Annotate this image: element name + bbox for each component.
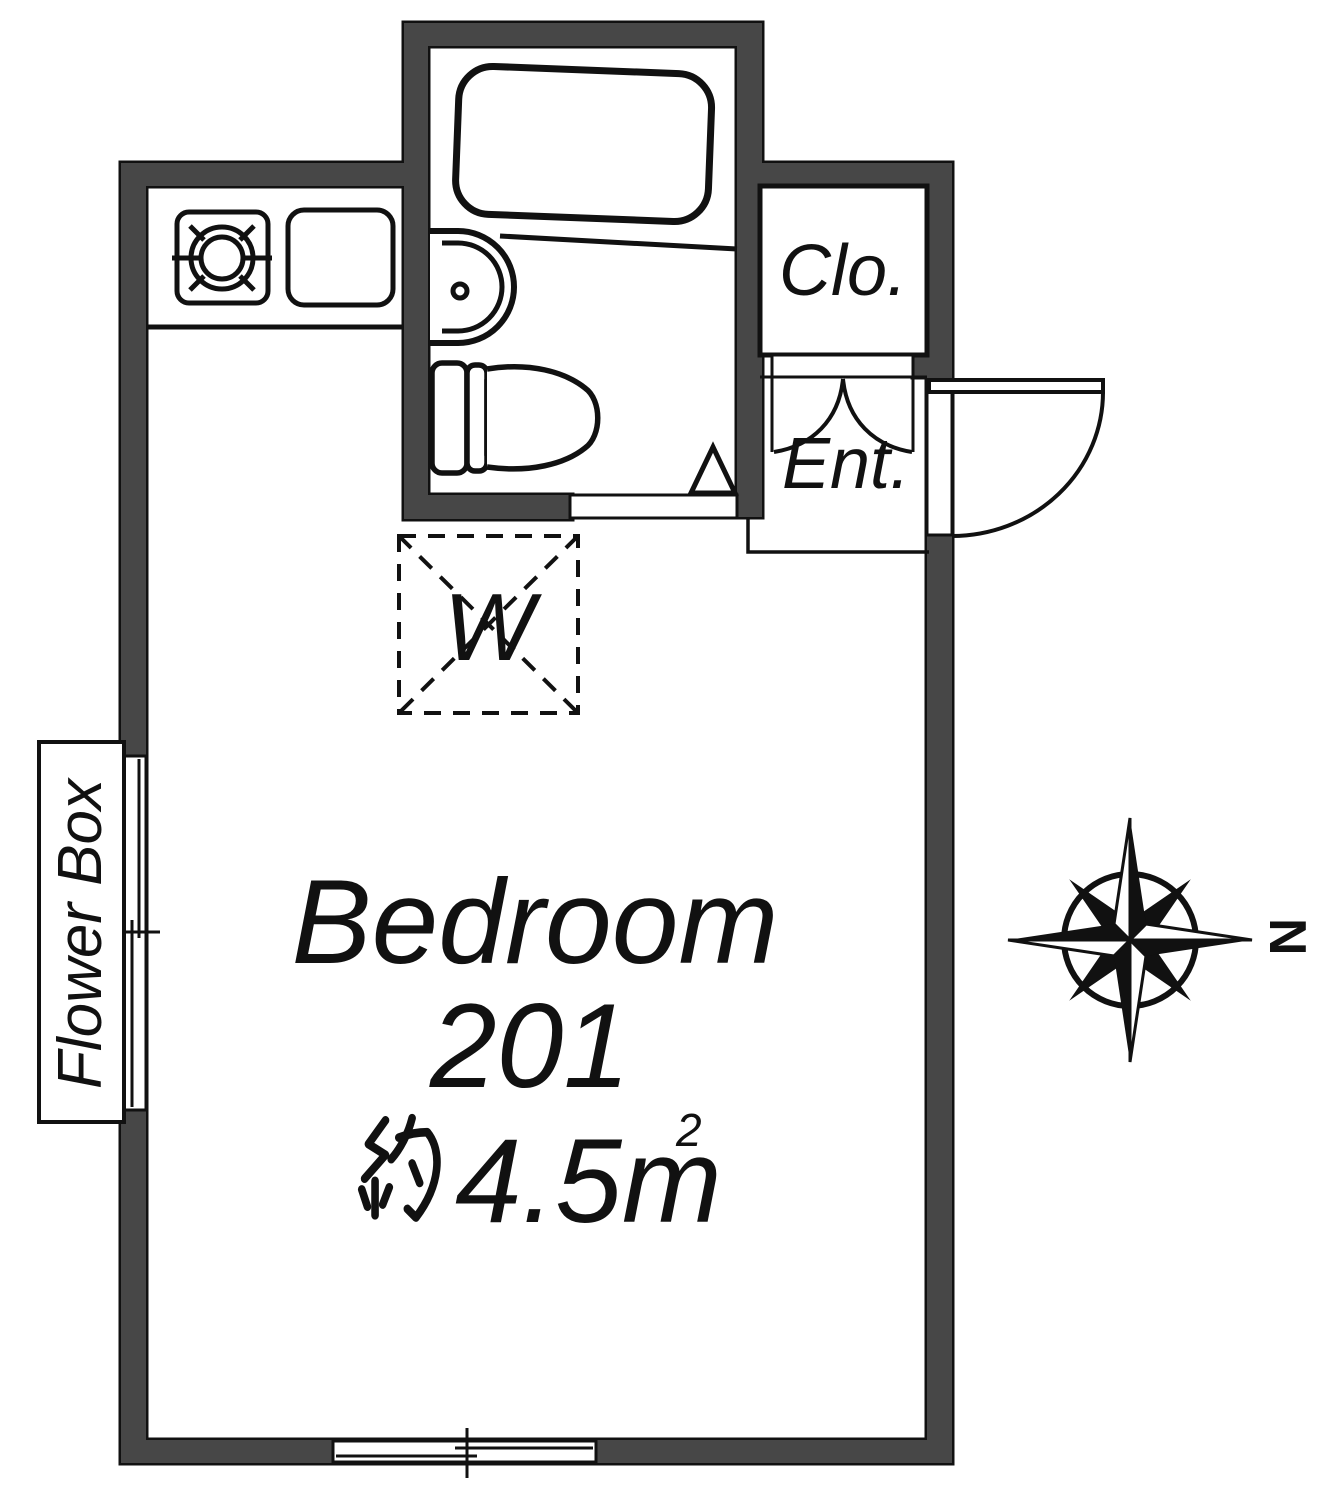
bathtub-platform-edge bbox=[500, 236, 737, 249]
closet: Clo. bbox=[760, 186, 927, 355]
door-opening bbox=[927, 383, 952, 535]
closet-door-track bbox=[772, 355, 913, 377]
flower-box: Flower Box bbox=[39, 742, 124, 1122]
area-label: 4.5m 2 bbox=[362, 1104, 722, 1248]
door-triangle-icon bbox=[691, 447, 735, 493]
bathroom-door-opening bbox=[570, 495, 737, 518]
sliding-window-bottom bbox=[333, 1428, 596, 1478]
entrance-label: Ent. bbox=[782, 424, 910, 504]
area-superscript: 2 bbox=[675, 1104, 702, 1156]
door-swing-icon bbox=[952, 392, 1103, 536]
washer-label: W bbox=[444, 574, 543, 681]
entrance-door bbox=[927, 380, 1103, 536]
room-number-label: 201 bbox=[429, 979, 630, 1113]
room-label: Bedroom bbox=[292, 855, 779, 989]
kitchen-counter bbox=[146, 210, 404, 327]
kitchen-sink-icon bbox=[288, 210, 393, 305]
entrance: Ent. bbox=[748, 355, 929, 552]
compass-north-label: N bbox=[1258, 918, 1316, 956]
toilet-icon bbox=[432, 363, 598, 473]
bathroom bbox=[430, 65, 737, 493]
washbasin-icon bbox=[430, 231, 514, 343]
sliding-window-icon bbox=[333, 1441, 596, 1462]
closet-label: Clo. bbox=[779, 231, 907, 311]
flower-box-label: Flower Box bbox=[46, 777, 115, 1089]
door-leaf bbox=[929, 380, 1103, 392]
bathtub-icon bbox=[454, 65, 712, 223]
floor-plan-page: Flower Box bbox=[0, 0, 1341, 1500]
compass-rose-icon: N bbox=[1008, 818, 1316, 1062]
floor-plan: Flower Box bbox=[0, 0, 1341, 1500]
kanji-yaku-icon bbox=[362, 1118, 437, 1217]
entrance-step-edge bbox=[748, 519, 929, 552]
